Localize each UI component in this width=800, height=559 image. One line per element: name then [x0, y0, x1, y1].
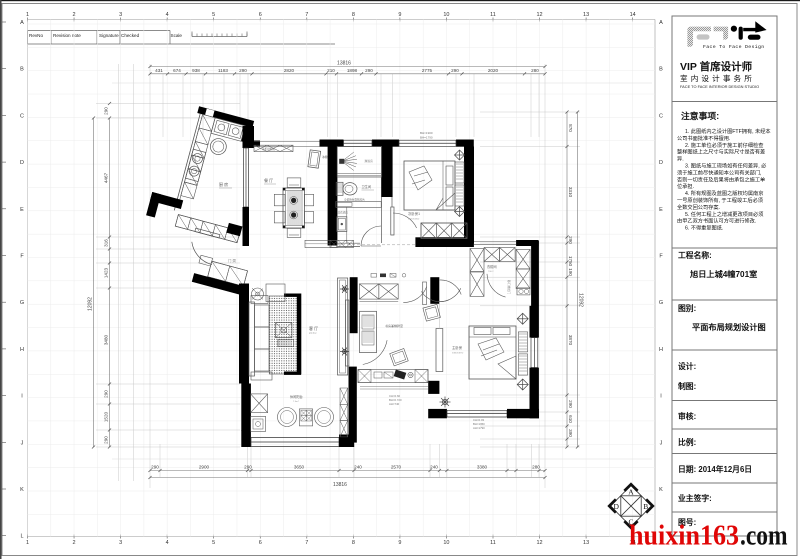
svg-text:3480: 3480	[104, 334, 109, 345]
svg-text:3380: 3380	[477, 465, 488, 470]
svg-text:整样图纸上之尺寸与实际尺寸是否有差: 整样图纸上之尺寸与实际尺寸是否有差	[677, 148, 765, 156]
svg-text:Checked: Checked	[121, 33, 140, 38]
svg-text:L: L	[20, 534, 23, 540]
svg-text:12092: 12092	[578, 293, 584, 307]
svg-text:290: 290	[104, 436, 109, 444]
svg-text:E: E	[659, 207, 663, 213]
svg-text:316: 316	[104, 239, 109, 247]
svg-text:BH=1900: BH=1900	[420, 131, 433, 135]
svg-text:13: 13	[583, 12, 589, 18]
svg-text:D: D	[20, 160, 24, 166]
svg-text:J: J	[660, 440, 663, 446]
svg-text:700.2: 700.2	[488, 271, 494, 273]
svg-text:3650: 3650	[294, 465, 305, 470]
svg-text:VIP 首席设计师: VIP 首席设计师	[680, 60, 753, 73]
svg-text:Scale: Scale	[171, 33, 183, 38]
svg-text:12: 12	[536, 540, 542, 546]
svg-text:23.7m²: 23.7m²	[309, 332, 317, 335]
svg-text:K: K	[659, 487, 663, 493]
svg-text:次卧房1: 次卧房1	[408, 211, 420, 216]
svg-text:G: G	[659, 300, 663, 306]
svg-text:5: 5	[212, 540, 215, 546]
svg-text:2020: 2020	[488, 68, 499, 73]
svg-text:比例:: 比例:	[678, 437, 696, 447]
svg-text:A: A	[659, 20, 663, 26]
svg-text:3310: 3310	[568, 187, 573, 198]
svg-text:4: 4	[166, 12, 169, 18]
svg-text:注意事项:: 注意事项:	[681, 110, 719, 121]
svg-text:E: E	[20, 207, 24, 213]
svg-text:7: 7	[305, 12, 308, 18]
svg-text:290: 290	[104, 107, 109, 115]
svg-text:须于施工前尽快通知本公司有关部门,: 须于施工前尽快通知本公司有关部门,	[677, 168, 761, 176]
svg-text:Revision note: Revision note	[53, 33, 81, 38]
svg-text:674: 674	[173, 68, 181, 73]
svg-text:1. 此图纸内之设计图FTF拥有, 未经本: 1. 此图纸内之设计图FTF拥有, 未经本	[685, 127, 771, 135]
svg-text:G: G	[20, 300, 24, 306]
svg-text:290: 290	[365, 68, 373, 73]
svg-text:1423: 1423	[104, 267, 109, 278]
svg-text:制图:: 制图:	[678, 381, 696, 391]
svg-text:1898: 1898	[347, 68, 358, 73]
svg-text:7: 7	[305, 540, 308, 546]
svg-text:日期: 2014年12月6日: 日期: 2014年12月6日	[678, 464, 752, 474]
svg-text:290: 290	[451, 68, 459, 73]
svg-text:5. 任何工程上之增减更改项目必须: 5. 任何工程上之增减更改项目必须	[685, 210, 763, 218]
svg-text:B: B	[643, 502, 648, 511]
svg-text:餐 厅: 餐 厅	[264, 177, 273, 183]
svg-text:A: A	[628, 488, 634, 497]
svg-text:H: H	[659, 347, 663, 353]
svg-text:290: 290	[568, 236, 573, 244]
svg-text:9: 9	[398, 540, 401, 546]
svg-text:审核:: 审核:	[678, 411, 696, 421]
svg-text:431: 431	[155, 68, 163, 73]
svg-text:厨 房: 厨 房	[219, 181, 228, 187]
svg-text:D: D	[659, 160, 663, 166]
svg-text:290: 290	[239, 68, 247, 73]
svg-text:3870: 3870	[568, 335, 573, 346]
svg-text:12092: 12092	[88, 297, 94, 311]
svg-text:室 内 设 计 事 务 所: 室 内 设 计 事 务 所	[680, 73, 752, 83]
svg-text:主卧房: 主卧房	[452, 345, 463, 350]
svg-text:J: J	[21, 440, 24, 446]
svg-text:huixin163: huixin163	[629, 520, 739, 552]
svg-text:AH=1790: AH=1790	[473, 426, 485, 430]
svg-text:BH=1790: BH=1790	[420, 136, 433, 140]
svg-text:610: 610	[568, 415, 573, 423]
svg-text:设计:: 设计:	[678, 361, 696, 371]
svg-text:业主签字:: 业主签字:	[678, 493, 712, 503]
svg-text:11: 11	[490, 540, 496, 546]
svg-text:5: 5	[212, 12, 215, 18]
svg-text:10: 10	[443, 540, 449, 546]
svg-text:210: 210	[327, 68, 335, 73]
svg-text:938: 938	[192, 68, 200, 73]
svg-text:2: 2	[73, 540, 76, 546]
svg-text:13: 13	[583, 540, 589, 546]
svg-text:3600X3300: 3600X3300	[408, 219, 420, 221]
svg-text:190: 190	[568, 268, 573, 276]
svg-text:870: 870	[568, 124, 573, 132]
svg-text:图别:: 图别:	[678, 304, 696, 313]
svg-text:9: 9	[398, 12, 401, 18]
svg-text:6. 不得重复图纸.: 6. 不得重复图纸.	[685, 224, 723, 232]
svg-text:280: 280	[531, 68, 539, 73]
svg-text:D: D	[613, 502, 619, 511]
svg-text:一号原创装饰所有, 于工程竣工后必须: 一号原创装饰所有, 于工程竣工后必须	[677, 196, 763, 204]
svg-text:Signature: Signature	[99, 33, 119, 38]
svg-text:位承担.: 位承担.	[677, 182, 694, 190]
svg-text:290: 290	[104, 390, 109, 398]
svg-text:4467: 4467	[104, 172, 109, 183]
svg-text:C: C	[659, 113, 663, 119]
svg-text:4. 所有规图及蓝图之版权均属南京: 4. 所有规图及蓝图之版权均属南京	[685, 189, 763, 197]
svg-text:8: 8	[352, 540, 355, 546]
svg-text:290: 290	[244, 465, 252, 470]
svg-text:240: 240	[430, 465, 438, 470]
svg-text:冰箱: 冰箱	[322, 154, 328, 159]
svg-text:A: A	[20, 20, 24, 26]
svg-text:RevNo: RevNo	[29, 33, 43, 38]
svg-text:2775: 2775	[422, 68, 433, 73]
svg-text:3380X3870: 3380X3870	[452, 353, 464, 355]
svg-text:平面布局规划设计图: 平面布局规划设计图	[692, 322, 766, 332]
svg-text:.com: .com	[740, 520, 788, 552]
svg-text:吊柜排烟机: 吊柜排烟机	[262, 147, 275, 151]
svg-text:3: 3	[119, 540, 122, 546]
svg-text:13816: 13816	[337, 61, 351, 67]
svg-text:2: 2	[73, 12, 76, 18]
svg-text:8: 8	[352, 12, 355, 18]
svg-text:C: C	[20, 113, 24, 119]
svg-text:1183: 1183	[218, 68, 228, 73]
svg-text:公司书面批准不得擅用.: 公司书面批准不得擅用.	[677, 134, 730, 142]
svg-text:280: 280	[532, 465, 540, 470]
svg-text:FACE TO FACE INTERIOR DESIGN S: FACE TO FACE INTERIOR DESIGN STUDIO	[680, 84, 759, 89]
svg-text:2820: 2820	[284, 68, 295, 73]
svg-text:B: B	[659, 67, 663, 73]
svg-text:12: 12	[536, 12, 542, 18]
svg-text:全数交回公司存案.: 全数交回公司存案.	[677, 203, 720, 211]
svg-text:7.0m²: 7.0m²	[293, 400, 299, 403]
svg-text:K: K	[20, 487, 24, 493]
svg-text:H: H	[20, 347, 24, 353]
svg-text:1: 1	[26, 12, 29, 18]
svg-text:290: 290	[568, 400, 573, 408]
svg-text:390: 390	[568, 429, 573, 437]
svg-text:衣帽间: 衣帽间	[487, 264, 497, 269]
svg-text:全瓷砖台面梳妆台: 全瓷砖台面梳妆台	[344, 197, 365, 201]
svg-text:2. 施工单位必须于施工前仔细检查: 2. 施工单位必须于施工前仔细检查	[685, 141, 763, 149]
svg-text:淋浴房: 淋浴房	[365, 159, 374, 163]
svg-text:Face To Face Design: Face To Face Design	[703, 44, 764, 50]
svg-text:2900: 2900	[199, 465, 210, 470]
svg-text:1750: 1750	[568, 256, 573, 267]
svg-text:由甲乙双方书面认可方可进行修改.: 由甲乙双方书面认可方可进行修改.	[677, 217, 756, 225]
svg-text:卫生间: 卫生间	[362, 184, 372, 189]
svg-text:290: 290	[151, 465, 159, 470]
svg-text:异.: 异.	[677, 156, 684, 163]
svg-text:240: 240	[354, 465, 362, 470]
svg-text:移门推拉门: 移门推拉门	[507, 280, 511, 294]
svg-text:4: 4	[166, 540, 169, 546]
svg-text:6: 6	[259, 12, 262, 18]
svg-text:门 洞: 门 洞	[228, 258, 236, 263]
svg-text:旭日上城4幢701室: 旭日上城4幢701室	[689, 269, 757, 279]
svg-text:14: 14	[630, 12, 636, 18]
svg-text:6: 6	[259, 540, 262, 546]
svg-text:10: 10	[443, 12, 449, 18]
svg-text:否则一切责任及后果将由承包之施工单: 否则一切责任及后果将由承包之施工单	[677, 175, 765, 183]
svg-text:客 厅: 客 厅	[309, 325, 318, 331]
svg-text:休闲阳台: 休闲阳台	[290, 394, 303, 399]
svg-text:11: 11	[490, 12, 496, 18]
svg-text:1: 1	[26, 540, 29, 546]
svg-text:书房兼棋牌室: 书房兼棋牌室	[385, 323, 403, 328]
svg-text:AH=740: AH=740	[389, 402, 400, 406]
svg-text:3. 图纸与施工现场如有任何差异, 必: 3. 图纸与施工现场如有任何差异, 必	[685, 162, 767, 170]
svg-text:3: 3	[119, 12, 122, 18]
svg-text:1520: 1520	[104, 411, 109, 422]
svg-text:13816: 13816	[333, 482, 347, 488]
svg-text:B: B	[20, 67, 24, 73]
svg-text:工程名称:: 工程名称:	[678, 250, 712, 260]
svg-text:2570: 2570	[391, 465, 402, 470]
